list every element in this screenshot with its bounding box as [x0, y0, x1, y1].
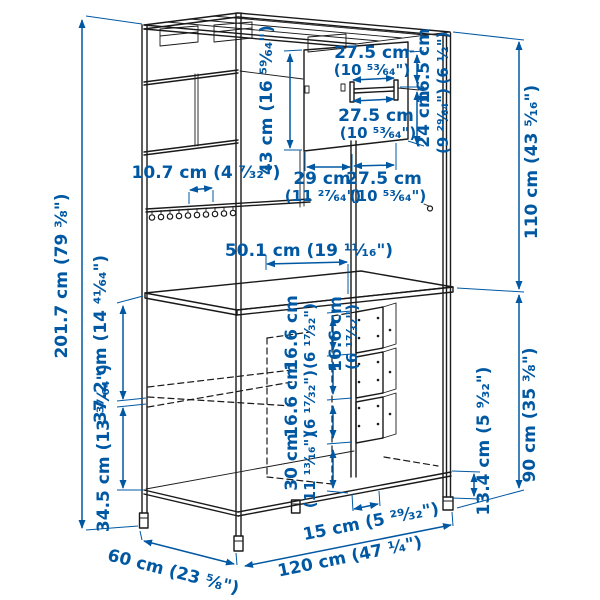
dim-rail-to-base-label: 34.5 cm (13 ³⁷⁄₆₄"): [94, 364, 114, 532]
dim-rail-offset-bottom-cm: 24 cm: [414, 90, 434, 147]
dim-panel-width-left-cm: 29 cm: [293, 169, 350, 189]
dim-rail-width-top: 27.5 cm (10 ⁵³⁄₆₄"): [334, 43, 410, 80]
dim-rail-offset-bottom-in: (9 ²⁹⁄₆₄"): [434, 88, 452, 154]
dim-panel-width-right: 27.5 cm (10 ⁵³⁄₆₄"): [346, 165, 426, 205]
dim-back-panel-height: 43 cm (16 ⁵⁹⁄₆₄"): [257, 25, 302, 175]
dim-panel-width-right-cm: 27.5 cm: [346, 169, 422, 189]
dim-total-depth-label: 60 cm (23 ⁵⁄₈"): [105, 546, 241, 599]
dim-rail-width-bottom-in: (10 ⁵³⁄₆₄"): [340, 124, 416, 142]
dim-drawer3-in: (6 ¹⁷⁄₃₂"): [301, 370, 319, 436]
dim-drawer2-in: (6 ¹⁷⁄₃₂"): [301, 303, 319, 369]
dim-back-panel-height-label: 43 cm (16 ⁵⁹⁄₆₄"): [257, 25, 277, 175]
dim-space-below-drawers-in: (11 ¹³⁄₁₆"): [301, 432, 319, 508]
dim-total-width-label: 120 cm (47 ¹⁄₄"): [276, 533, 424, 582]
dim-leg-height: 13.4 cm (5 ⁹⁄₃₂"): [452, 367, 494, 516]
dim-drawer1-in: (6 ¹⁷⁄₃₂"): [343, 304, 361, 370]
dim-total-depth: 60 cm (23 ⁵⁄₈"): [105, 531, 241, 599]
dim-leg-height-label: 13.4 cm (5 ⁹⁄₃₂"): [474, 367, 494, 516]
dim-upper-section: 110 cm (43 ⁵⁄₁₆"): [453, 32, 542, 292]
dim-hook-spacing-label: 10.7 cm (4 ⁷⁄₃₂"): [132, 163, 281, 183]
dim-lower-section: 90 cm (35 ³⁄₈"): [457, 295, 540, 508]
dim-tabletop-clear-width-label: 50.1 cm (19 ¹¹⁄₁₆"): [225, 241, 393, 261]
dim-rail-width-top-cm: 27.5 cm: [334, 43, 410, 63]
dim-drawer2-cm: 16.6 cm: [282, 295, 302, 371]
dim-drawer3-cm: 16.6 cm: [282, 362, 302, 438]
dim-rail-to-base: 34.5 cm (13 ³⁷⁄₆₄"): [94, 364, 143, 532]
drawer-unit: [356, 303, 396, 443]
dim-rail-offset-bottom: 24 cm (9 ²⁹⁄₆₄"): [408, 88, 452, 154]
dim-hook-spacing: 10.7 cm (4 ⁷⁄₃₂"): [132, 163, 281, 204]
dim-total-height-label: 201.7 cm (79 ³⁄₈"): [52, 193, 72, 358]
dim-rail-width-bottom-cm: 27.5 cm: [338, 106, 414, 126]
dim-rail-offset-top-in: (6 ¹⁄₂"): [434, 32, 452, 85]
dim-rail-width-top-in: (10 ⁵³⁄₆₄"): [334, 61, 410, 79]
dimension-diagram: 201.7 cm (79 ³⁄₈") 37.2 cm (14 ⁴¹⁄₆₄") 3…: [0, 0, 600, 600]
dim-rail-width-bottom: 27.5 cm (10 ⁵³⁄₆₄"): [338, 99, 416, 142]
dim-space-below-drawers-cm: 30 cm: [282, 433, 302, 490]
dim-lower-section-label: 90 cm (35 ³⁄₈"): [520, 348, 540, 483]
dim-upper-section-label: 110 cm (43 ⁵⁄₁₆"): [522, 85, 542, 239]
post-front-left: [236, 13, 241, 536]
diagram-canvas: 201.7 cm (79 ³⁄₈") 37.2 cm (14 ⁴¹⁄₆₄") 3…: [0, 0, 600, 600]
dim-panel-width-right-in: (10 ⁵³⁄₆₄"): [350, 187, 426, 205]
dim-drawer-heights: 16.6 cm (6 ¹⁷⁄₃₂") 16.6 cm (6 ¹⁷⁄₃₂") 16…: [282, 295, 361, 508]
dim-tabletop-clear-width: 50.1 cm (19 ¹¹⁄₁₆"): [225, 241, 393, 294]
post-back-left: [142, 25, 147, 513]
